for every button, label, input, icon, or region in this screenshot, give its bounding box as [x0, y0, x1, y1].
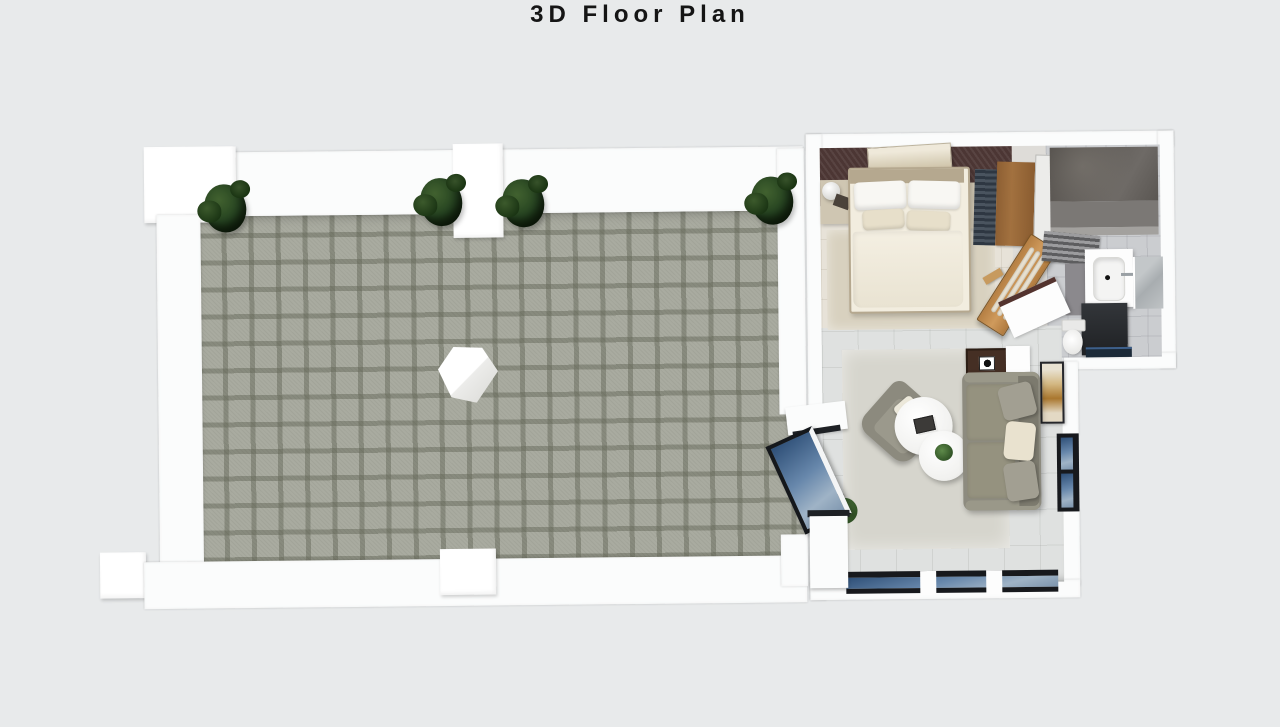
- shower-half-wall: [1050, 201, 1158, 228]
- sofa-pillow-gray-bottom: [1003, 460, 1040, 502]
- white-console: [1006, 346, 1030, 372]
- living-wall-right-lower: [1061, 509, 1080, 585]
- table-mini-plant: [935, 444, 953, 461]
- terrace-plant-corner: [204, 184, 247, 232]
- bath-entry-mat: [1086, 347, 1132, 357]
- terrace-wall-left: [156, 215, 204, 567]
- double-bed: [848, 167, 972, 314]
- bed-duvet: [853, 231, 964, 308]
- floor-plan: [0, 0, 1280, 727]
- bathroom-mirror: [1133, 257, 1164, 309]
- terrace-wall-right-lower: [781, 534, 809, 586]
- sofa-pillow-cream: [1003, 421, 1036, 462]
- glass-door-jamb-bottom: [810, 516, 849, 588]
- bed-pillow-cream-right: [906, 210, 951, 232]
- window-frame-bottom: [846, 587, 1058, 594]
- terrace-tiled-floor: [194, 210, 806, 589]
- decor-figure: [983, 359, 992, 367]
- terrace-pillar-bottom-middle: [440, 549, 496, 596]
- shower-area: [1050, 147, 1159, 202]
- table-books: [913, 415, 936, 434]
- sink-faucet: [1121, 273, 1133, 276]
- living-window-right-frame: [1057, 433, 1080, 511]
- decor-frame: [979, 356, 995, 370]
- bed-pillow-white-left: [854, 180, 907, 210]
- window-mullion: [986, 570, 1002, 594]
- living-window-right-glass: [1061, 437, 1073, 469]
- bathroom-vanity: [1085, 249, 1134, 307]
- living-wall-art: [1040, 362, 1065, 424]
- window-mullion: [920, 571, 936, 595]
- terrace-plant-top-right: [751, 176, 794, 224]
- sink-drain: [1105, 275, 1110, 280]
- terrace-plant-left-of-pillar: [420, 178, 463, 226]
- bed-pillow-white-right: [908, 180, 961, 209]
- wardrobe-ribbed-side: [973, 169, 997, 246]
- living-window-right-glass: [1061, 473, 1073, 507]
- toilet-bowl: [1063, 329, 1083, 354]
- terrace-plant-right-of-pillar: [502, 179, 545, 227]
- coffee-table-small: [919, 431, 970, 482]
- sofa: [962, 372, 1041, 511]
- terrace-pillar-bottom-left: [100, 552, 146, 598]
- living-window-bottom: [846, 570, 1058, 596]
- bed-pillow-cream-left: [862, 208, 905, 231]
